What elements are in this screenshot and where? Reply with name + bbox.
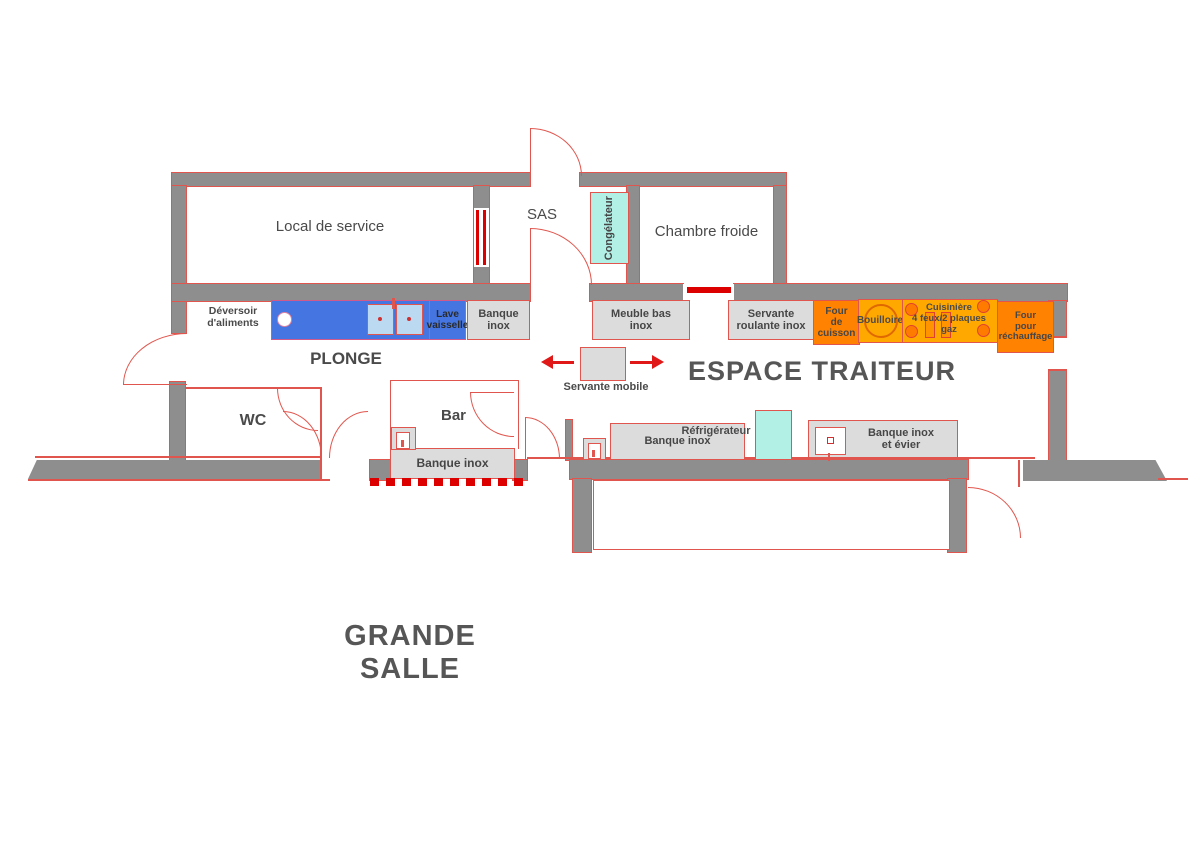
door-arc-left-exterior (123, 333, 187, 385)
evier-drain-icon (827, 437, 834, 444)
wall-room-right (948, 479, 966, 552)
line-bottom-left-top-edge (35, 456, 322, 458)
cuisiniere-label: Cuisinière 4 feux/2 plaques gaz (898, 303, 1000, 336)
wall-band-b (590, 284, 683, 301)
wall-top-left (172, 173, 530, 186)
window-service-sas-bar-right (483, 210, 486, 265)
line-door-jamb-right (1018, 460, 1020, 487)
line-bottom-left-bottom-edge (28, 479, 330, 481)
door-arc-passage-right (329, 411, 368, 458)
room-label-wc: WC (186, 412, 320, 430)
window-service-sas-bar-left (476, 210, 479, 265)
wall-band-a (172, 284, 530, 301)
room-label-local-de-service: Local de service (186, 218, 474, 235)
room-label-chambre-froide: Chambre froide (639, 223, 774, 240)
banque-inox-bar-box: Banque inox (390, 448, 515, 479)
room-label-plonge: PLONGE (300, 349, 392, 369)
bouilloire-label: Bouilloire (856, 315, 904, 327)
wall-bottom-right (1023, 460, 1167, 481)
floor-plan: Déversoir d'aliments Lave vaisselle Banq… (0, 0, 1200, 848)
room-label-bar: Bar (390, 407, 517, 424)
door-arc-grande-salle (968, 487, 1021, 538)
wall-mid-stub (566, 420, 572, 460)
door-arc-sas-exterior (530, 128, 582, 176)
deversoir-label: Déversoir d'aliments (200, 305, 266, 329)
wall-froide-right (774, 186, 786, 284)
wall-left-lower (170, 382, 185, 460)
evier-tap-icon (828, 453, 830, 461)
banque-inox-plonge-box: Banque inox (467, 300, 530, 340)
door-arc-sas-kitchen (530, 228, 592, 285)
dotted-service-line (370, 478, 527, 486)
congelateur-label: Congélateur (603, 196, 615, 260)
wall-bottom-left (28, 460, 322, 479)
faucet-mark-icon (392, 298, 395, 309)
wall-right-lower (1049, 370, 1066, 460)
bar-sink-tap-icon (401, 440, 404, 447)
wall-bar-right-stub (513, 460, 527, 480)
wall-bottom-main (570, 460, 968, 479)
drain-hole-icon (277, 312, 292, 327)
line-right-extension (1158, 478, 1188, 480)
window-right-bottom-edge (1049, 369, 1066, 371)
refrigerateur-label: Réfrigérateur (640, 425, 792, 438)
wall-room-left (573, 479, 591, 552)
wall-left-upper (172, 186, 186, 333)
basin-right-drain-icon (407, 317, 411, 321)
room-label-sas: SAS (487, 206, 597, 223)
congelateur-box: Congélateur (590, 192, 629, 264)
arrow-left-head-icon (541, 355, 553, 369)
bottom-room-outline (593, 480, 950, 550)
lave-vaisselle-box: Lave vaisselle (429, 300, 466, 340)
arrow-left-icon (552, 361, 574, 364)
room-label-grande-salle: GRANDE SALLE (293, 620, 527, 687)
servante-roulante-box: Servante roulante inox (728, 300, 814, 340)
wall-top-right (580, 173, 786, 186)
door-arc-bar-right (525, 417, 560, 459)
corridor-sink-tap-icon (592, 450, 595, 457)
four-de-cuisson-box: Four de cuisson (813, 300, 860, 345)
wall-bar-left-stub (370, 460, 390, 480)
room-label-espace-traiteur: ESPACE TRAITEUR (640, 356, 1004, 387)
servante-mobile-box (580, 347, 626, 381)
four-rechauffage-box: Four pour réchauffage (997, 301, 1054, 353)
door-froide-panel (687, 287, 731, 293)
meuble-bas-inox-box: Meuble bas inox (592, 300, 690, 340)
line-wc-right-wall (320, 387, 322, 480)
basin-left-drain-icon (378, 317, 382, 321)
